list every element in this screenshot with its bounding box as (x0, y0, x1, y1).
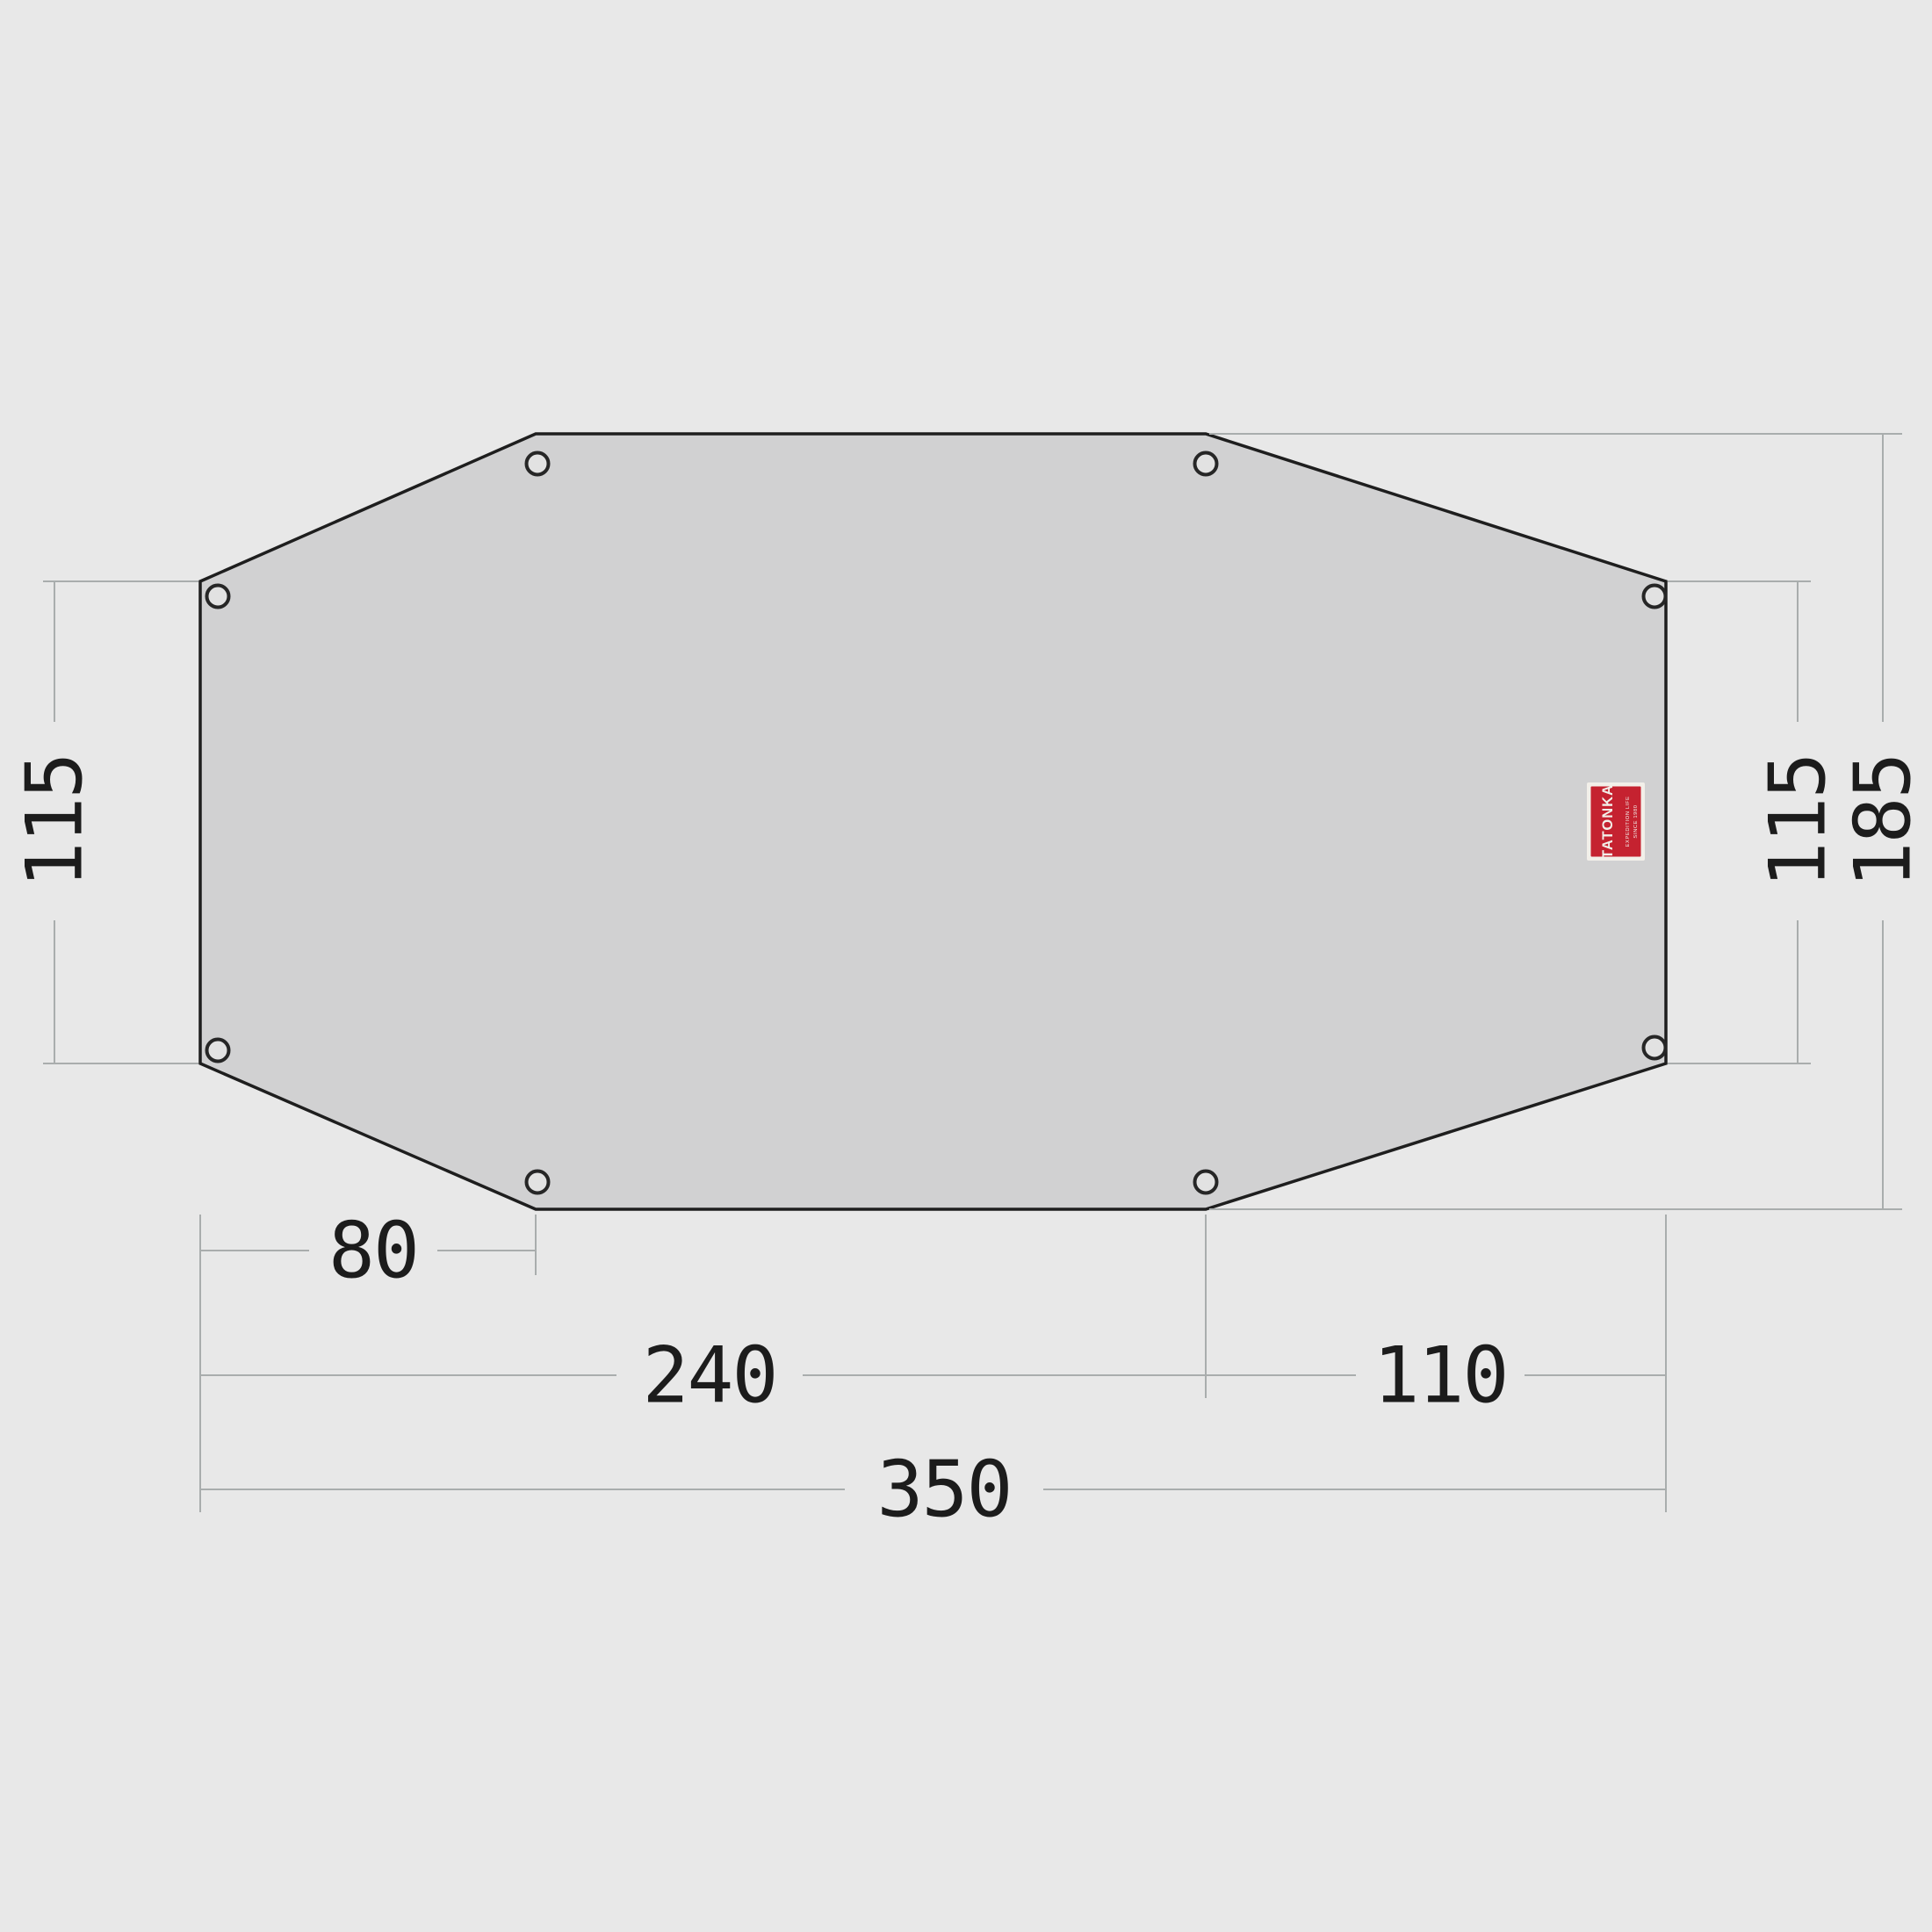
tent-footprint-outline (200, 434, 1666, 1209)
grommet-top-front-right (1195, 453, 1217, 475)
technical-drawing-canvas: 115 115 185 80 240 110 350 TATONKA EXPED… (0, 0, 1932, 1932)
brand-tagline-line1: EXPEDITION LIFE (1626, 797, 1631, 847)
grommet-bottom-left (207, 1040, 229, 1062)
dimension-label-total-height: 185 (1838, 754, 1928, 889)
dimension-label-total-width: 350 (877, 1445, 1012, 1535)
grommet-bottom-front-left (527, 1171, 549, 1193)
dimension-label-left-height: 115 (10, 754, 100, 889)
dimension-label-bottom-left: 80 (328, 1206, 418, 1296)
dimension-label-bottom-middle: 240 (643, 1330, 777, 1421)
brand-tagline-line2: SINCE 1980 (1633, 804, 1639, 838)
dimension-label-bottom-right: 110 (1373, 1330, 1508, 1421)
grommet-bottom-right (1644, 1037, 1666, 1059)
grommet-top-front-left (527, 453, 549, 475)
brand-label: TATONKA EXPEDITION LIFE SINCE 1980 (1587, 782, 1645, 861)
grommet-top-left (207, 586, 229, 608)
brand-wordmark: TATONKA (1600, 784, 1616, 859)
grommet-top-right (1644, 586, 1666, 608)
grommet-bottom-front-right (1195, 1171, 1217, 1193)
tent-footprint-dimension-diagram: 115 115 185 80 240 110 350 TATONKA EXPED… (0, 0, 1932, 1932)
dimension-label-right-height: 115 (1753, 754, 1843, 889)
